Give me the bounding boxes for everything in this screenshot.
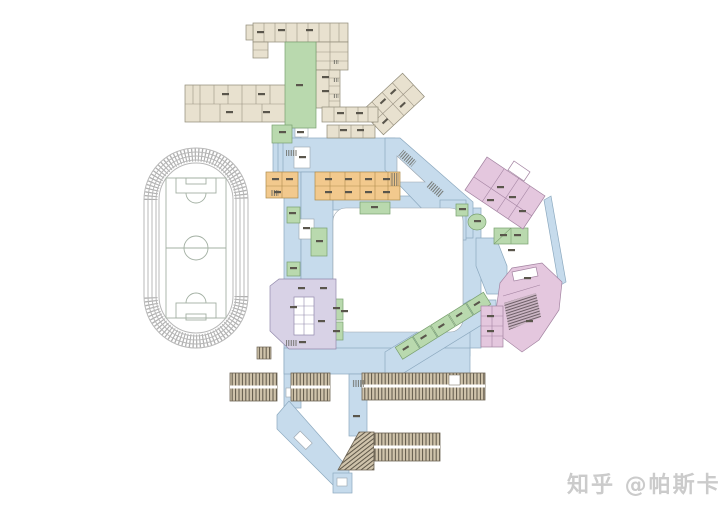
- parking-fan: [338, 432, 374, 470]
- watermark: 知乎 @帕斯卡: [567, 472, 720, 498]
- east-wing: [316, 70, 340, 108]
- campus-floor-plan: 知乎 @帕斯卡: [0, 0, 720, 508]
- orange-building: [266, 172, 400, 200]
- floor-plan-page: 知乎 @帕斯卡: [0, 0, 720, 508]
- west-building: [185, 85, 288, 122]
- soccer-field: [166, 178, 226, 320]
- mid-beige-strips: [322, 107, 378, 138]
- southwest-purple-building: [257, 279, 336, 359]
- south-band: [284, 348, 470, 374]
- central-courtyard: [333, 208, 463, 332]
